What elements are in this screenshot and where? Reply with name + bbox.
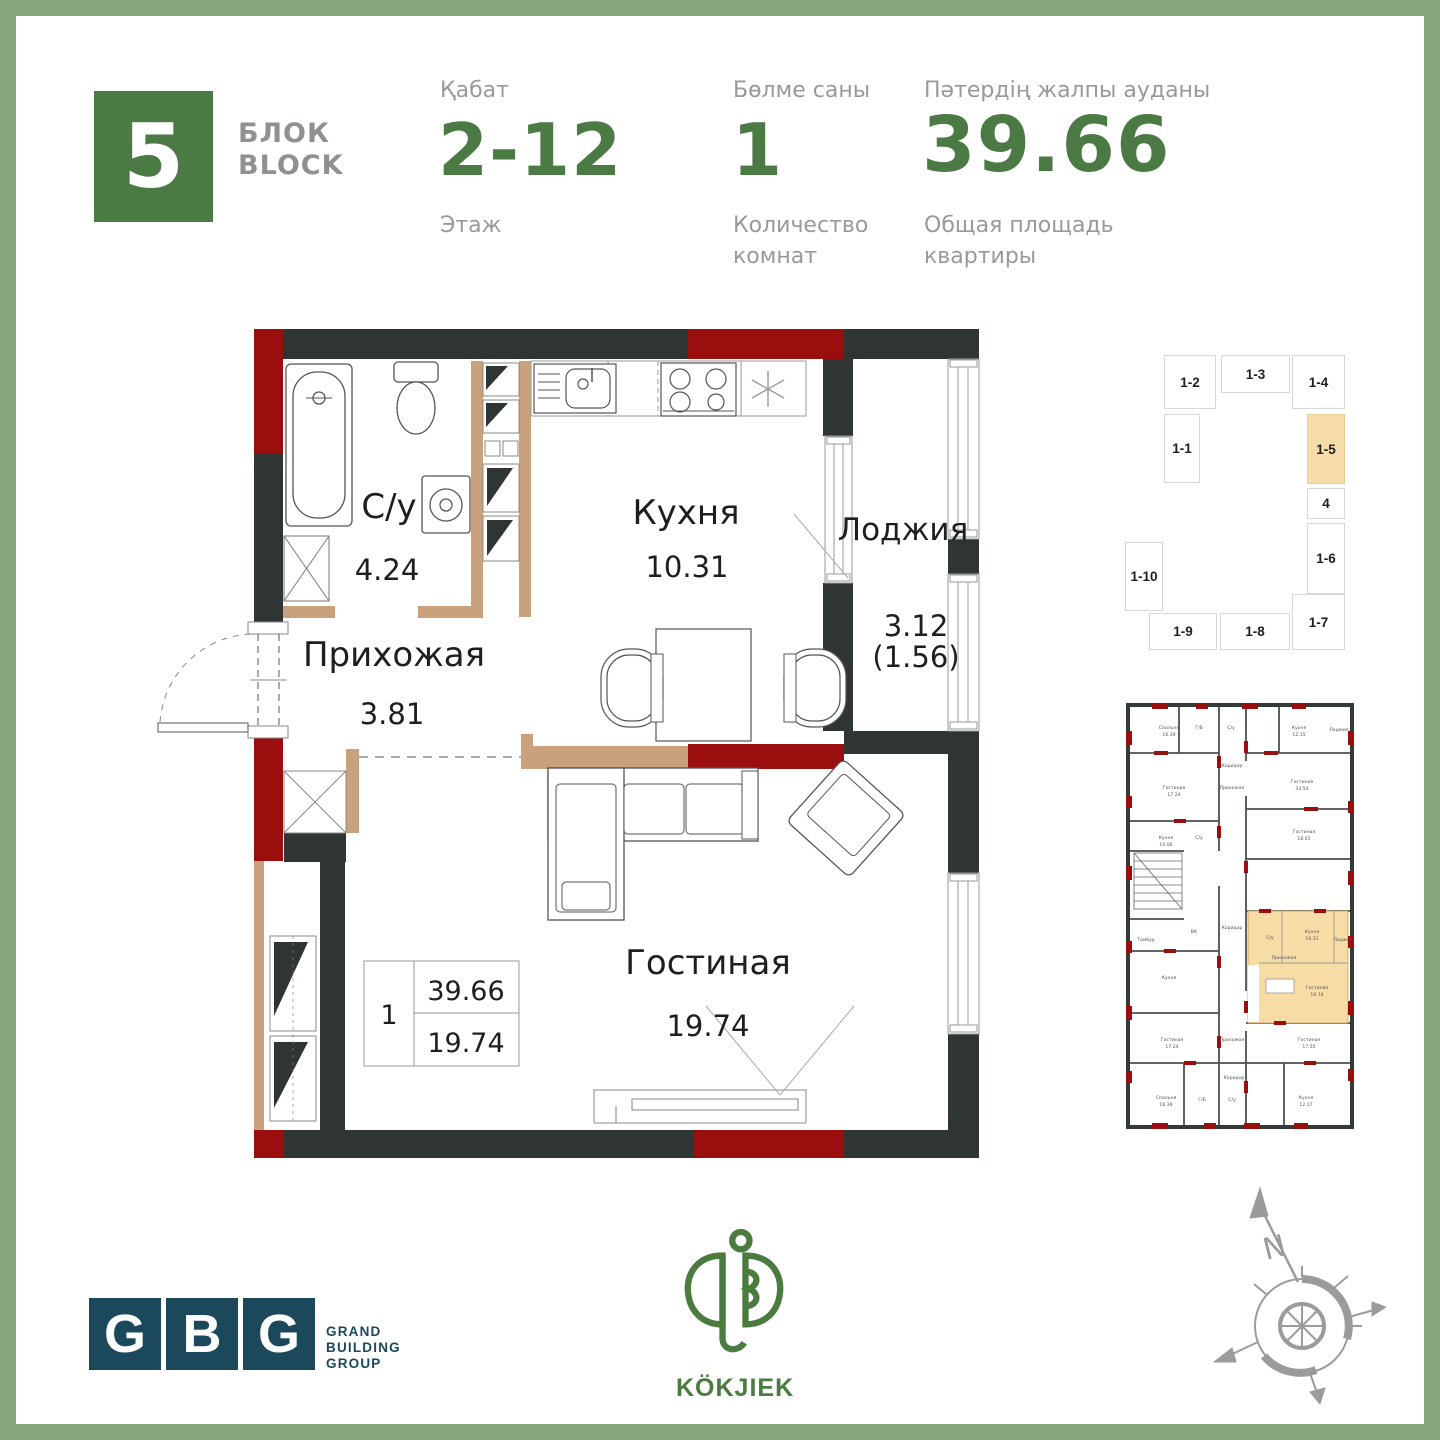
legend-living-area: 19.74 xyxy=(427,1028,504,1059)
closet-shelves xyxy=(270,936,316,1121)
svg-text:17.24: 17.24 xyxy=(1167,792,1180,798)
svg-text:Гостиная: Гостиная xyxy=(1298,1037,1321,1043)
block-number-badge: 5 xyxy=(94,91,213,222)
svg-text:Кухня: Кухня xyxy=(1162,975,1177,981)
kitchen-sink xyxy=(534,364,616,413)
sofa xyxy=(548,768,758,920)
gbg-letter-g2: G xyxy=(243,1298,315,1370)
kitchen-area: 10.31 xyxy=(645,550,728,584)
gbg-name: GRAND BUILDING GROUP xyxy=(326,1324,401,1372)
svg-text:16.39: 16.39 xyxy=(1159,1102,1172,1108)
svg-text:Коридор: Коридор xyxy=(1224,1075,1245,1081)
washing-machine xyxy=(422,476,470,533)
svg-text:17.55: 17.55 xyxy=(1302,1044,1315,1050)
svg-text:18.01: 18.01 xyxy=(1297,836,1310,842)
key-plan: 1-2 1-3 1-4 1-1 1-5 4 1-6 1-10 1-9 1-8 1… xyxy=(1116,346,1366,666)
svg-text:12.15: 12.15 xyxy=(1292,732,1305,738)
kokjiek-logo-icon xyxy=(676,1228,792,1368)
svg-text:Гостиная: Гостиная xyxy=(1163,785,1186,791)
svg-text:Лоджия: Лоджия xyxy=(1333,937,1353,943)
kokjiek-logo-name: KÖKJIEK xyxy=(676,1374,792,1403)
floor-label-kz: Қабат xyxy=(440,78,509,103)
svg-text:Коридор: Коридор xyxy=(1222,925,1243,931)
mini-stairs xyxy=(1134,853,1182,909)
key-plan-unit-1-8[interactable]: 1-8 xyxy=(1220,613,1290,650)
wardrobe xyxy=(284,771,346,833)
stove xyxy=(661,363,736,416)
svg-text:Кухня: Кухня xyxy=(1159,835,1174,841)
svg-text:С/у: С/у xyxy=(1227,725,1235,731)
svg-text:Гостиная: Гостиная xyxy=(1293,829,1316,835)
svg-text:Кухня: Кухня xyxy=(1292,725,1307,731)
chair xyxy=(784,649,846,727)
key-plan-unit-1-4[interactable]: 1-4 xyxy=(1292,355,1345,409)
chair xyxy=(601,649,663,727)
rooms-label-ru: Количество комнат xyxy=(733,210,868,272)
key-plan-unit-1-9[interactable]: 1-9 xyxy=(1149,613,1217,650)
armchair xyxy=(787,759,906,878)
legend-total-area: 39.66 xyxy=(427,976,504,1007)
vent-shaft xyxy=(483,363,519,561)
floor-value: 2-12 xyxy=(438,108,622,192)
mini-highlighted-unit xyxy=(1248,911,1348,1023)
svg-text:Г/Б: Г/Б xyxy=(1198,1097,1206,1103)
gbg-letter-g1: G xyxy=(89,1298,161,1370)
kitchen-label: Кухня xyxy=(632,493,739,533)
rooms-value: 1 xyxy=(732,108,783,192)
svg-text:ВК: ВК xyxy=(1191,929,1198,935)
area-label-kz: Пәтердің жалпы ауданы xyxy=(924,78,1210,103)
compass-north-label: N xyxy=(1259,1228,1289,1267)
hall-label: Прихожая xyxy=(303,635,485,675)
compass: N xyxy=(1206,1184,1386,1404)
shower-box xyxy=(284,536,329,601)
loggia-label: Лоджия xyxy=(838,512,968,548)
svg-text:Прихожая: Прихожая xyxy=(1272,955,1297,961)
gbg-logo: G B G xyxy=(89,1298,315,1370)
living-label: Гостиная xyxy=(625,943,791,983)
svg-text:Кухня: Кухня xyxy=(1305,929,1320,935)
key-plan-unit-1-5-highlighted[interactable]: 1-5 xyxy=(1307,414,1345,484)
svg-text:Прихожая: Прихожая xyxy=(1220,1037,1245,1043)
walls xyxy=(254,329,979,1158)
loggia-area: 3.12 xyxy=(884,609,949,643)
area-value: 39.66 xyxy=(922,104,1171,188)
svg-text:Тамбур: Тамбур xyxy=(1136,937,1155,943)
dining-table xyxy=(656,629,751,741)
svg-text:Гостиная: Гостиная xyxy=(1306,985,1329,991)
svg-text:Спальня: Спальня xyxy=(1159,725,1180,731)
key-plan-unit-1-6[interactable]: 1-6 xyxy=(1307,523,1345,594)
svg-text:С/у: С/у xyxy=(1266,935,1274,941)
bathroom-label: С/у xyxy=(361,487,416,527)
svg-text:Кухня: Кухня xyxy=(1299,1095,1314,1101)
area-label-ru: Общая площадь квартиры xyxy=(924,210,1114,272)
key-plan-unit-1-10[interactable]: 1-10 xyxy=(1125,542,1163,611)
legend-rooms: 1 xyxy=(380,1000,397,1031)
svg-text:Гостиная: Гостиная xyxy=(1291,779,1314,785)
gbg-letter-b: B xyxy=(166,1298,238,1370)
bathtub xyxy=(286,364,352,526)
key-plan-cell-4[interactable]: 4 xyxy=(1307,488,1345,519)
svg-text:19.74: 19.74 xyxy=(1310,992,1323,998)
rooms-label-kz: Бөлме саны xyxy=(733,78,870,103)
floor-plan: 1 39.66 19.74 С/у 4.24 Кухня 10.31 Лоджи… xyxy=(146,316,996,1186)
svg-text:С/у: С/у xyxy=(1195,835,1203,841)
svg-text:Спальня: Спальня xyxy=(1156,1095,1177,1101)
key-plan-unit-1-2[interactable]: 1-2 xyxy=(1164,355,1216,409)
mini-floor-plan: Спальня16.39 Г/БС/у Кухня12.15 ЛоджияКор… xyxy=(1124,701,1356,1131)
svg-text:10.06: 10.06 xyxy=(1159,842,1172,848)
entrance-door xyxy=(158,622,288,738)
svg-text:Гостиная: Гостиная xyxy=(1161,1037,1184,1043)
svg-text:Лоджия: Лоджия xyxy=(1329,727,1349,733)
hall-area: 3.81 xyxy=(360,697,425,731)
floor-label-ru: Этаж xyxy=(440,210,501,241)
svg-text:12.17: 12.17 xyxy=(1299,1102,1312,1108)
block-label: БЛОК BLOCK xyxy=(238,118,344,182)
svg-text:Г/Б: Г/Б xyxy=(1195,725,1203,731)
svg-text:С/у: С/у xyxy=(1228,1097,1236,1103)
svg-text:Коридор: Коридор xyxy=(1222,763,1243,769)
loggia-area-half: (1.56) xyxy=(872,640,959,674)
svg-text:16.39: 16.39 xyxy=(1162,732,1175,738)
svg-text:17.24: 17.24 xyxy=(1165,1044,1178,1050)
svg-text:33.54: 33.54 xyxy=(1295,786,1308,792)
bathroom-area: 4.24 xyxy=(355,553,420,587)
key-plan-unit-1-1[interactable]: 1-1 xyxy=(1164,414,1200,483)
toilet xyxy=(394,362,438,434)
electric-panel-icon xyxy=(741,361,806,416)
key-plan-unit-1-7[interactable]: 1-7 xyxy=(1292,594,1345,650)
key-plan-unit-1-3[interactable]: 1-3 xyxy=(1221,355,1290,393)
svg-text:10.31: 10.31 xyxy=(1305,936,1318,942)
plan-sheet: 5 БЛОК BLOCK Қабат 2-12 Этаж Бөлме саны … xyxy=(0,0,1440,1440)
living-area: 19.74 xyxy=(666,1009,749,1043)
svg-text:Прихожая: Прихожая xyxy=(1220,785,1245,791)
